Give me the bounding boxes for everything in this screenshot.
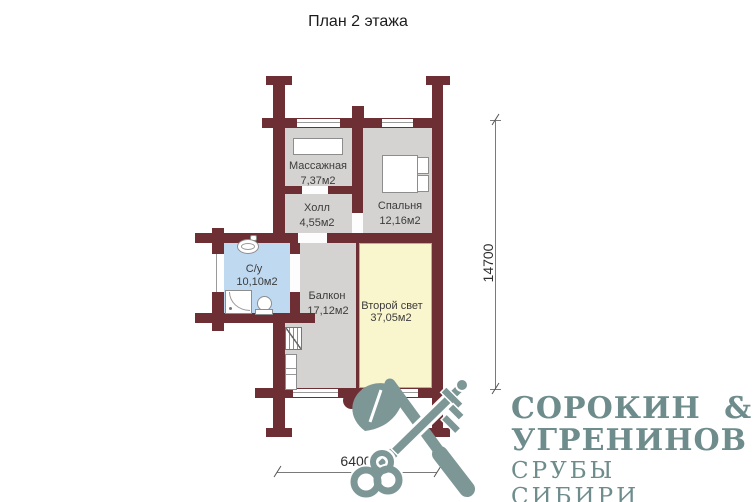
wall-massage-hall-l xyxy=(285,186,302,194)
pillow-icon xyxy=(417,157,429,174)
wall-middle-right xyxy=(327,233,443,243)
room-area-hall: 4,55м2 xyxy=(299,217,334,229)
massage-table-icon xyxy=(293,138,343,155)
window-bathroom xyxy=(212,254,224,292)
floor-plan-page: План 2 этажа Массажная 7,37м2 xyxy=(0,0,753,502)
room-label-bathroom: С/у xyxy=(246,263,263,275)
room-label-second-light: Второй свет xyxy=(361,300,422,312)
room-label-hall: Холл xyxy=(304,202,330,214)
wall-massage-hall-r xyxy=(328,186,352,194)
log-cap-bottom-left xyxy=(266,428,292,437)
door-massage xyxy=(302,186,328,194)
logo-company-name-line2: УГРЕНИНОВ xyxy=(511,423,747,458)
room-area-massage: 7,37м2 xyxy=(300,175,335,187)
plan-title: План 2 этажа xyxy=(263,13,453,31)
window-bottom-left xyxy=(293,389,338,397)
log-stub-top-middle xyxy=(352,106,364,120)
pillow-icon xyxy=(417,175,429,192)
staircase-icon xyxy=(285,327,302,350)
wall-left-upper xyxy=(273,84,285,243)
sink-icon xyxy=(237,239,259,254)
wall-left-lower xyxy=(273,317,285,398)
vertical-dimension-label: 14700 xyxy=(480,232,496,294)
room-label-balcony: Балкон xyxy=(309,290,346,302)
room-area-bedroom: 12,16м2 xyxy=(379,215,420,227)
log-stub-bottom-left xyxy=(273,398,285,428)
door-bathroom xyxy=(290,254,300,292)
room-area-balcony: 17,12м2 xyxy=(307,305,348,317)
logo-tagline: СРУБЫ СИБИРИ xyxy=(511,458,753,502)
wall-hall-bedroom xyxy=(352,128,363,213)
window-top-left xyxy=(297,119,340,127)
door-hall-balcony xyxy=(298,233,327,243)
log-cap-top-left xyxy=(266,76,292,85)
toilet-tank-icon xyxy=(255,309,273,315)
room-area-second-light: 37,05м2 xyxy=(370,312,411,324)
room-label-massage: Массажная xyxy=(289,160,347,172)
window-top-right xyxy=(382,119,413,127)
door-bedroom xyxy=(352,213,363,233)
logo-company-name-line1: СОРОКИН & xyxy=(511,391,752,426)
bed-icon xyxy=(382,155,418,193)
log-cap-top-right xyxy=(426,76,450,85)
staircase-lower-icon xyxy=(285,354,297,390)
shower-icon xyxy=(225,290,252,314)
room-area-bathroom: 10,10м2 xyxy=(236,276,277,288)
wall-balcony-divider xyxy=(356,243,359,388)
axe-key-logo-icon xyxy=(340,370,512,502)
room-label-bedroom: Спальня xyxy=(378,200,422,212)
